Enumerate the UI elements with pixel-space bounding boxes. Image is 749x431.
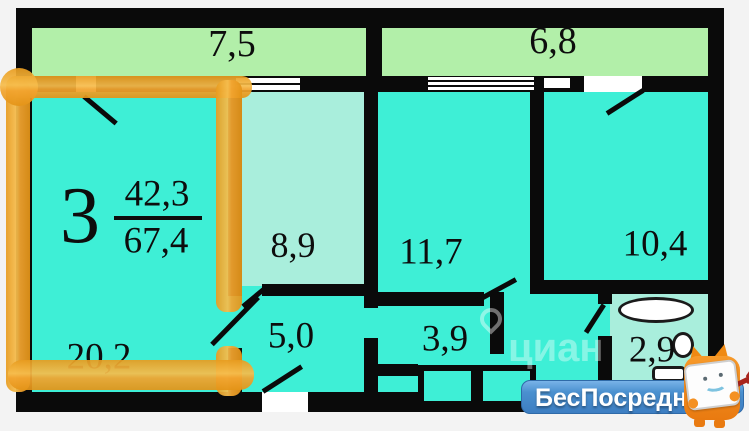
highlight-right-upper [216, 80, 242, 312]
apartment-number: 3 [60, 176, 100, 256]
floor-plan-image: 7,5 6,8 3 42,3 67,4 20,2 8,9 5,0 11,7 3,… [0, 0, 749, 431]
room-5-0-label: 5,0 [268, 318, 314, 355]
balcony-left-label: 7,5 [208, 25, 256, 63]
wall-hall-kitchen-upper [364, 92, 378, 308]
mascot-monitor-screen [683, 359, 740, 411]
wall-stub-closet [377, 364, 418, 376]
wall-bath-left-upper [598, 292, 612, 304]
window-small [544, 78, 570, 88]
wall-hall-kitchen-lower [364, 338, 378, 394]
mascot-eye-right [719, 373, 723, 377]
wall-below-hallway [262, 284, 378, 296]
wall-jamb-kitchen [490, 292, 504, 354]
mascot-cat-icon [678, 348, 748, 430]
window-room-11 [428, 77, 534, 90]
highlight-bottom [8, 360, 254, 390]
highlight-corner-blob [0, 68, 38, 106]
wall-between-bedrooms [530, 92, 544, 294]
entrance-opening [262, 392, 308, 412]
mascot-trident-tine-1 [745, 365, 749, 379]
room-3-9-label: 3,9 [422, 321, 468, 358]
balcony-door-room-10 [584, 76, 642, 92]
wall-below-room-11 [364, 292, 484, 306]
highlight-left [6, 80, 30, 392]
mascot-foot-left [694, 418, 705, 427]
area-fraction-bar [114, 216, 202, 220]
total-area-label: 67,4 [124, 223, 189, 260]
mascot-smile [703, 378, 726, 393]
mascot-foot-right [714, 419, 725, 428]
room-11-7-label: 11,7 [399, 234, 462, 271]
closet-1 [418, 365, 477, 407]
balcony-left-area [30, 26, 368, 78]
room-10-4-label: 10,4 [623, 226, 688, 263]
wall-lobby-top [530, 280, 708, 294]
mascot-eye-left [703, 377, 707, 381]
room-2-9-label: 2,9 [629, 332, 675, 369]
mascot-paw-right [729, 391, 740, 402]
bathtub-icon [618, 297, 694, 323]
balcony-right-label: 6,8 [529, 22, 577, 60]
room-8-9-label: 8,9 [271, 227, 316, 263]
living-area-label: 42,3 [125, 176, 190, 213]
mascot-paw-left [688, 398, 699, 409]
